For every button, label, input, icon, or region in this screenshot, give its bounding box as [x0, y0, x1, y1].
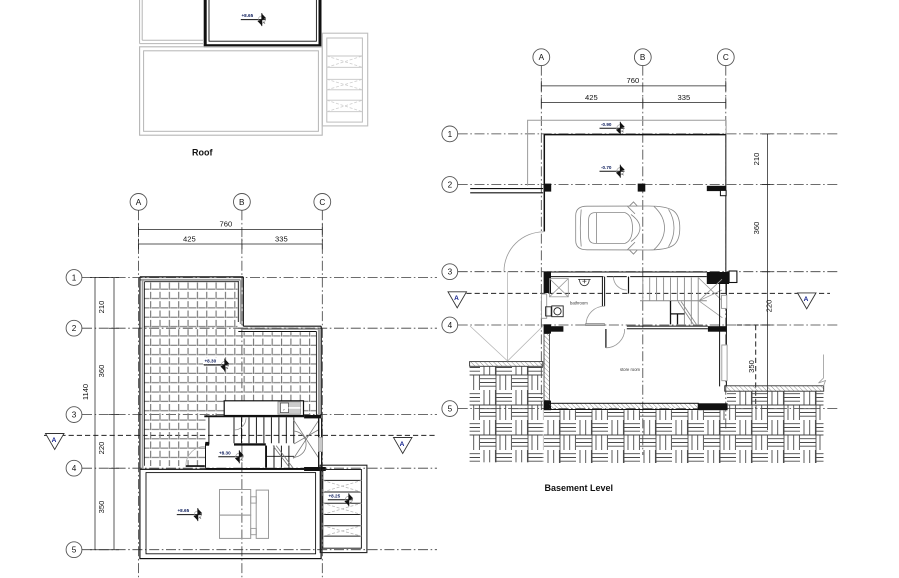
svg-text:760: 760	[220, 220, 233, 229]
svg-text:220: 220	[97, 442, 106, 455]
svg-text:5: 5	[72, 546, 77, 555]
svg-text:Basement Level: Basement Level	[545, 483, 614, 493]
svg-text:A: A	[454, 295, 459, 302]
svg-text:425: 425	[585, 93, 598, 102]
svg-text:350: 350	[97, 501, 106, 514]
svg-text:360: 360	[752, 222, 761, 235]
svg-text:5: 5	[448, 405, 453, 414]
svg-text:B: B	[640, 53, 646, 62]
svg-text:760: 760	[627, 76, 640, 85]
svg-text:-0.90: -0.90	[601, 122, 612, 127]
svg-text:C: C	[723, 53, 729, 62]
svg-text:335: 335	[275, 234, 288, 243]
svg-text:+8.30: +8.30	[205, 359, 217, 364]
svg-text:425: 425	[183, 234, 196, 243]
svg-text:B: B	[239, 198, 245, 207]
svg-text:3: 3	[448, 268, 453, 277]
svg-text:1: 1	[72, 274, 77, 283]
svg-text:335: 335	[678, 93, 691, 102]
svg-text:1140: 1140	[81, 384, 90, 400]
svg-text:1: 1	[448, 130, 453, 139]
svg-text:+8.65: +8.65	[178, 508, 190, 513]
svg-text:2: 2	[448, 181, 453, 190]
svg-text:A: A	[804, 296, 809, 303]
svg-text:bathroom: bathroom	[570, 301, 588, 306]
svg-text:4: 4	[72, 464, 77, 473]
svg-text:A: A	[136, 198, 142, 207]
svg-text:C: C	[319, 198, 325, 207]
svg-text:4: 4	[448, 321, 453, 330]
svg-text:+8.25: +8.25	[329, 493, 341, 498]
svg-text:store room: store room	[620, 367, 641, 372]
svg-text:+8.30: +8.30	[219, 450, 231, 455]
svg-text:350: 350	[747, 360, 756, 373]
svg-text:210: 210	[97, 301, 106, 314]
svg-text:3: 3	[72, 411, 77, 420]
svg-text:Roof: Roof	[192, 148, 213, 158]
svg-text:210: 210	[752, 153, 761, 166]
svg-text:A: A	[539, 53, 545, 62]
svg-text:A: A	[52, 437, 57, 444]
svg-text:360: 360	[97, 365, 106, 378]
svg-text:2: 2	[72, 324, 77, 333]
svg-text:+8.65: +8.65	[242, 13, 254, 18]
svg-text:-0.70: -0.70	[601, 165, 612, 170]
svg-text:220: 220	[765, 300, 774, 313]
svg-text:A: A	[400, 441, 405, 448]
